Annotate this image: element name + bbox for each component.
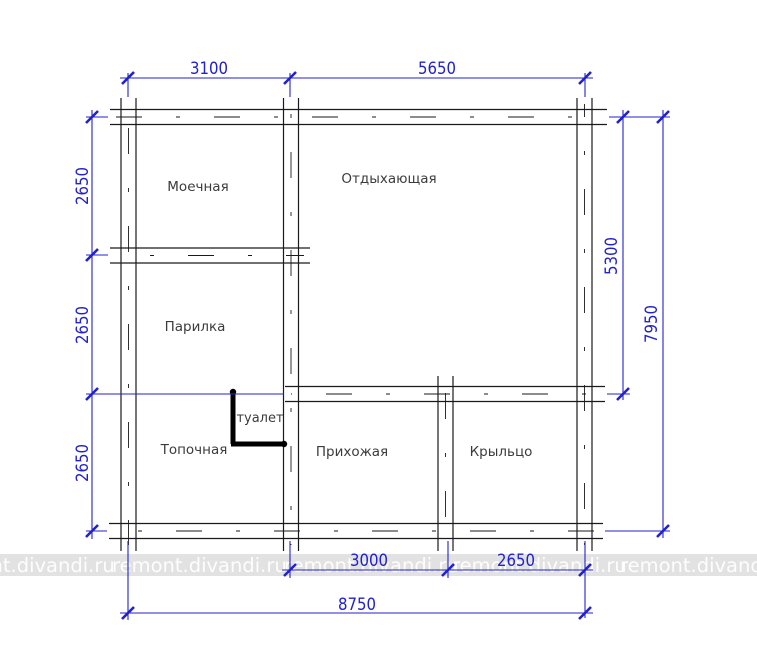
floorplan-canvas: remont.divandi.ruremont.divandi.ruremont… xyxy=(0,0,757,672)
toilet-partition-dot xyxy=(281,441,287,447)
dim-label-2650-porch: 2650 xyxy=(497,551,535,571)
room-label-lounge: Отдыхающая xyxy=(341,171,436,187)
dim-label-2650-bottom: 2650 xyxy=(73,444,93,482)
dim-label-2650-middle: 2650 xyxy=(73,306,93,344)
room-label-hallway: Прихожая xyxy=(316,444,388,460)
floorplan-svg: remont.divandi.ruremont.divandi.ruremont… xyxy=(0,0,757,672)
watermark-text: remont.divandi.ru xyxy=(0,554,115,577)
room-label-porch: Крыльцо xyxy=(470,444,533,460)
room-label-furnace: Топочная xyxy=(160,442,228,458)
dim-label-5300: 5300 xyxy=(602,237,622,275)
room-label-toilet: туалет xyxy=(236,411,284,426)
dim-label-3100: 3100 xyxy=(190,59,228,79)
room-label-washroom: Моечная xyxy=(167,179,228,195)
room-label-steamroom: Парилка xyxy=(165,319,226,335)
dim-label-5650: 5650 xyxy=(418,59,456,79)
watermark-text: remont.divandi.ru xyxy=(452,554,627,577)
dim-label-7950: 7950 xyxy=(642,305,662,343)
dim-label-3000: 3000 xyxy=(350,551,388,571)
dim-label-2650-top: 2650 xyxy=(73,167,93,205)
dim-label-8750: 8750 xyxy=(338,595,376,615)
watermark-text: remont.divandi.ru xyxy=(620,554,757,577)
watermark-text: remont.divandi.ru xyxy=(112,554,287,577)
